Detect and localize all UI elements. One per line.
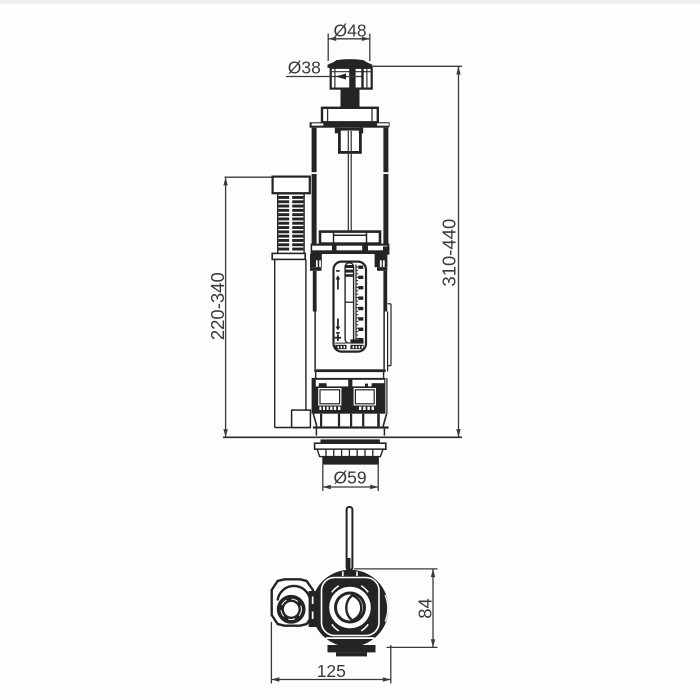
svg-text:310-440: 310-440 bbox=[438, 219, 459, 287]
svg-text:Ø59: Ø59 bbox=[334, 468, 367, 488]
svg-text:Ø48: Ø48 bbox=[334, 20, 367, 40]
svg-text:220-340: 220-340 bbox=[207, 272, 228, 340]
svg-text:Ø38: Ø38 bbox=[288, 57, 321, 77]
svg-text:84: 84 bbox=[415, 598, 436, 619]
svg-text:125: 125 bbox=[317, 661, 346, 681]
